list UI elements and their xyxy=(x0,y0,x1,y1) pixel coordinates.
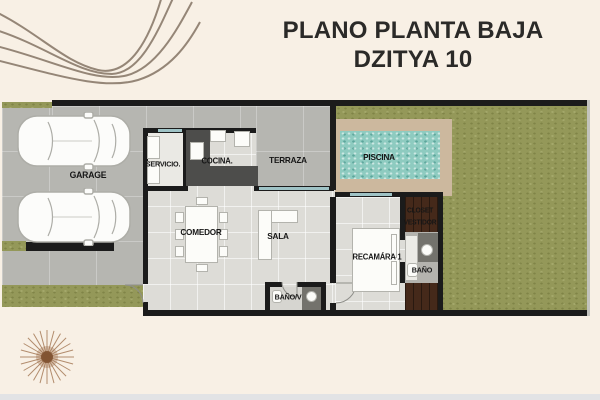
bedroom-label: RECAMÁRA 1 xyxy=(352,253,401,262)
bath-label: BAÑO xyxy=(412,266,432,275)
comedor-label: COMEDOR xyxy=(180,227,221,237)
dining-chair xyxy=(196,197,208,205)
dining-chair xyxy=(196,264,208,272)
pillow xyxy=(391,261,397,285)
bath-sink xyxy=(421,244,433,256)
washer xyxy=(147,136,160,159)
kitchen-counter-lower xyxy=(186,166,258,186)
servicio-label: SERVICIO. xyxy=(146,160,181,169)
kitchen-appliance xyxy=(234,131,250,147)
car-top-view xyxy=(16,112,132,170)
car-top-view xyxy=(16,188,132,246)
dining-chair xyxy=(175,212,184,223)
bottom-edge-strip xyxy=(0,394,600,400)
stove xyxy=(210,130,226,142)
closet-label-line2: VESTIDOR xyxy=(404,220,437,227)
guest-bath-sink xyxy=(306,291,317,302)
garage-label: GARAGE xyxy=(70,170,107,180)
piscina-label: PISCINA xyxy=(363,152,395,162)
guest-bath-label: BAÑO/V xyxy=(275,293,302,302)
terraza-label: TERRAZA xyxy=(269,155,307,165)
sala-label: SALA xyxy=(267,231,288,241)
cocina-label: COCINA. xyxy=(201,157,232,166)
dining-chair xyxy=(219,212,228,223)
dining-chair xyxy=(219,246,228,257)
dining-chair xyxy=(175,246,184,257)
floor-plan-poster: PLANO PLANTA BAJA DZITYA 10 xyxy=(0,0,600,400)
closet-label-line1: CLOSET xyxy=(407,208,433,215)
